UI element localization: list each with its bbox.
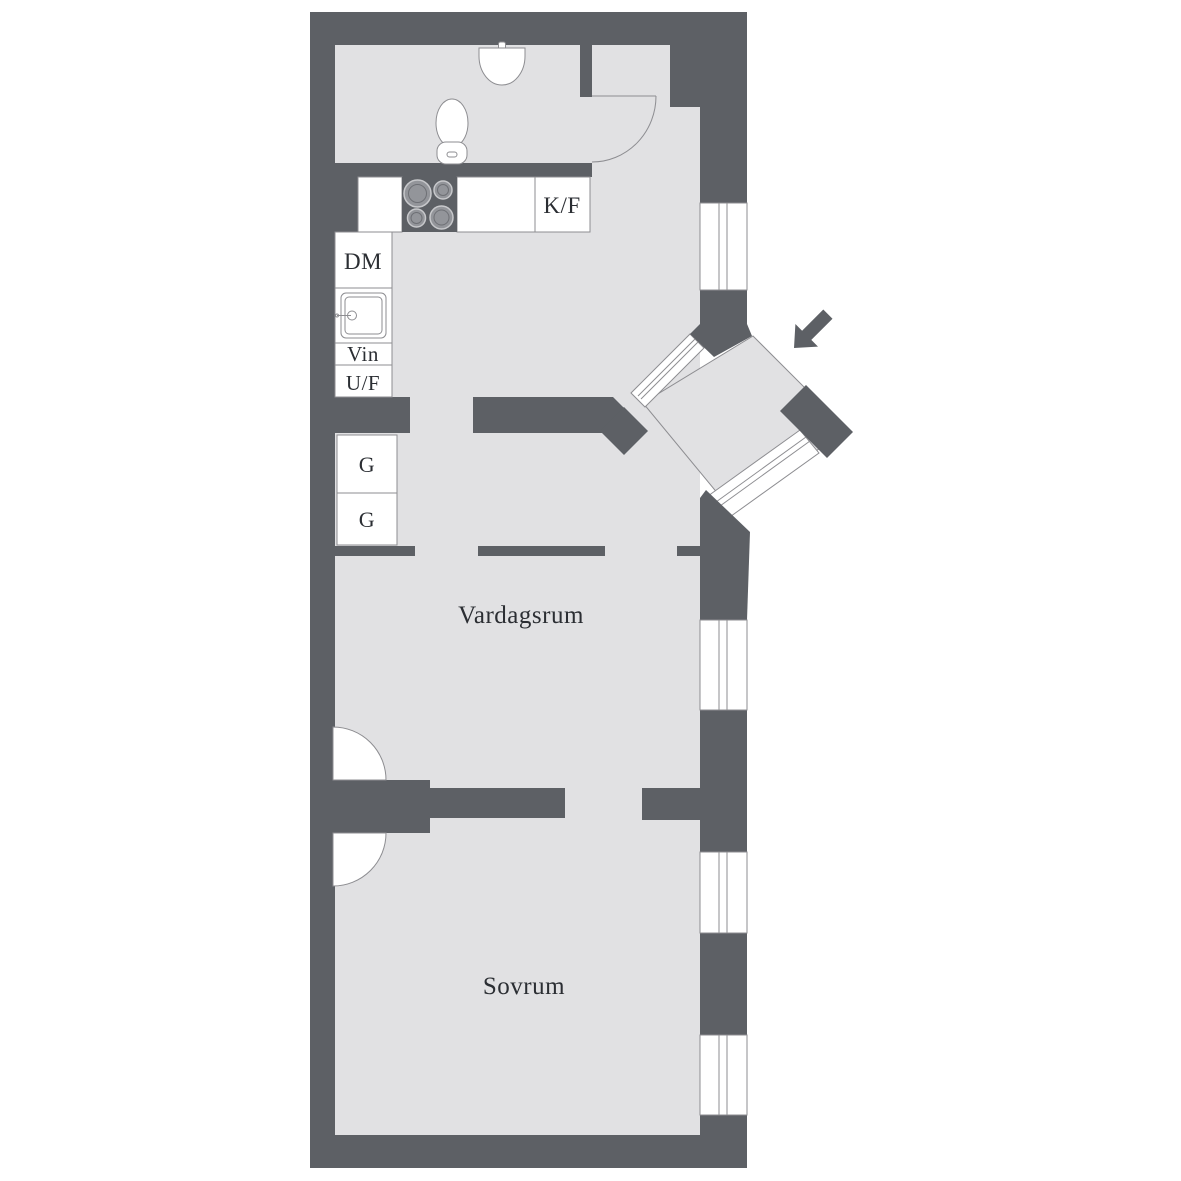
wall-living-top-3 [677,546,700,556]
stove-icon [402,177,457,232]
wall-living-bedroom-right [642,788,700,820]
wall-kitchen-living-left [333,397,410,433]
wall-bathroom-bottom [333,163,592,177]
bedroom-label: Sovrum [483,973,565,1000]
wall-living-top-1 [333,546,415,556]
wardrobe-2-label: G [359,507,375,532]
wall-bathroom-right [580,45,592,97]
floor-plan-page: Vardagsrum Sovrum K/F DM Vin U/F G G [0,0,1181,1181]
fridge-freezer-label: K/F [543,193,580,218]
wall-right-bedroom-mid [700,933,747,1035]
entrance-arrow-icon [794,310,833,349]
wall-top [310,12,747,45]
living-room-label: Vardagsrum [458,602,584,629]
wall-right-above-entry [700,290,747,324]
oven-freezer-label: U/F [346,371,380,395]
wall-bathroom-corner [333,163,358,232]
toilet-icon [436,99,468,164]
window-living-room [700,620,747,710]
kitchen-counter-1 [358,177,402,232]
wall-left [310,12,335,1168]
wall-right-living-lower [700,710,747,852]
window-bedroom-1 [700,852,747,933]
wall-bottom [310,1135,747,1168]
wall-entry-southwest [700,490,750,620]
wall-right-bedroom-lower [700,1115,747,1168]
window-kitchen [700,203,747,290]
wall-living-bedroom-thin [430,788,565,818]
wall-living-top-2 [478,546,605,556]
kitchen-counter-2 [457,177,535,232]
floor-plan: Vardagsrum Sovrum K/F DM Vin U/F G G [0,0,1181,1181]
wall-living-bedroom-thick [333,780,430,833]
wardrobe-1-label: G [359,452,375,477]
wall-hall-nook [670,45,747,107]
wine-label: Vin [347,342,379,366]
dishwasher-label: DM [344,249,382,274]
window-bedroom-2 [700,1035,747,1115]
